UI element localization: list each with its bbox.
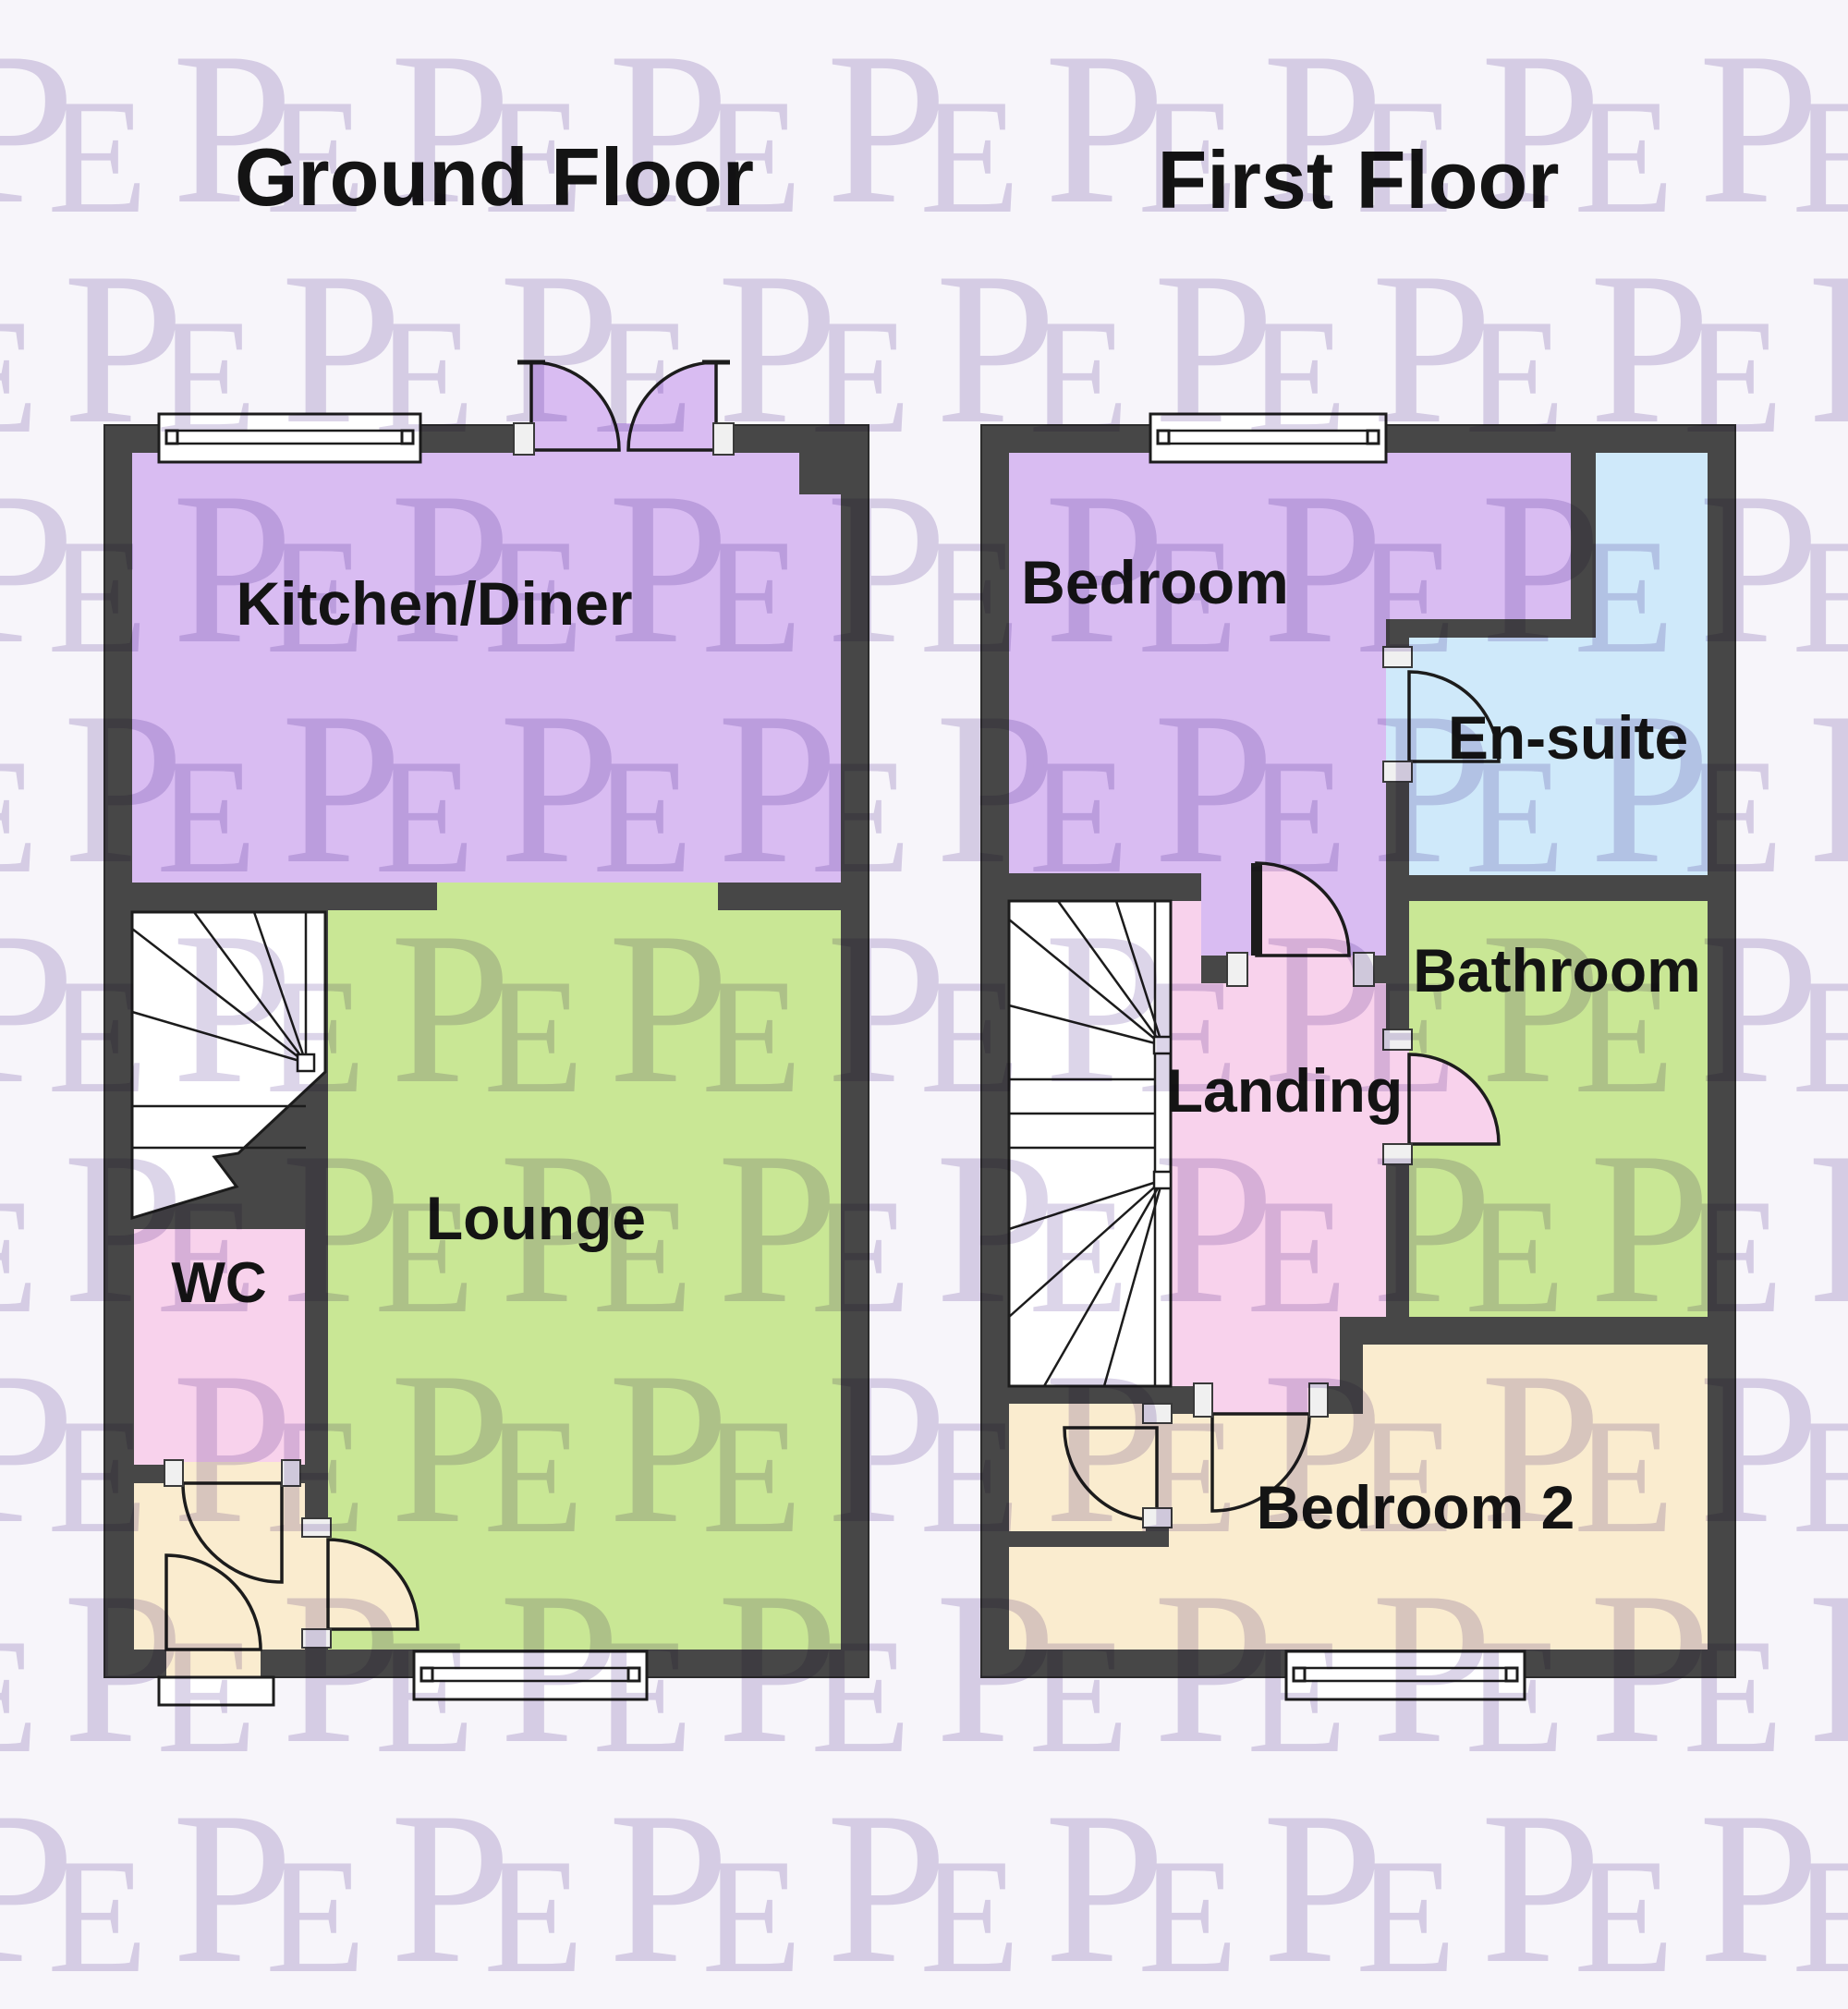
bedroom2-label: Bedroom 2 — [1257, 1473, 1575, 1541]
lounge-label: Lounge — [426, 1184, 646, 1252]
first-floor-title: First Floor — [1157, 134, 1559, 225]
kitchen-diner-label: Kitchen/Diner — [236, 569, 632, 638]
first-floor-stairs — [1009, 901, 1171, 1386]
ground-floor-title: Ground Floor — [235, 131, 754, 223]
ground-floor-plan: Ground Floor — [104, 131, 869, 1705]
bedroom-label: Bedroom — [1021, 548, 1289, 616]
landing-label: Landing — [1166, 1056, 1404, 1125]
kitchen-diner-room — [132, 453, 841, 883]
floorplan-drawing: Ground Floor — [0, 0, 1848, 1848]
en-suite-label: En-suite — [1448, 703, 1688, 772]
bedroom2-window — [1286, 1651, 1525, 1699]
bedroom-window — [1150, 414, 1386, 462]
kitchen-window — [159, 414, 420, 462]
first-floor-plan: First Floor — [981, 134, 1735, 1699]
lounge-room — [328, 883, 841, 1650]
front-door-step — [159, 1677, 274, 1705]
bathroom-label: Bathroom — [1413, 936, 1701, 1004]
french-doors — [514, 362, 734, 455]
wc-label: WC — [171, 1251, 266, 1315]
lounge-window — [414, 1651, 647, 1699]
floorplan-canvas: Ground Floor — [0, 0, 1848, 1848]
